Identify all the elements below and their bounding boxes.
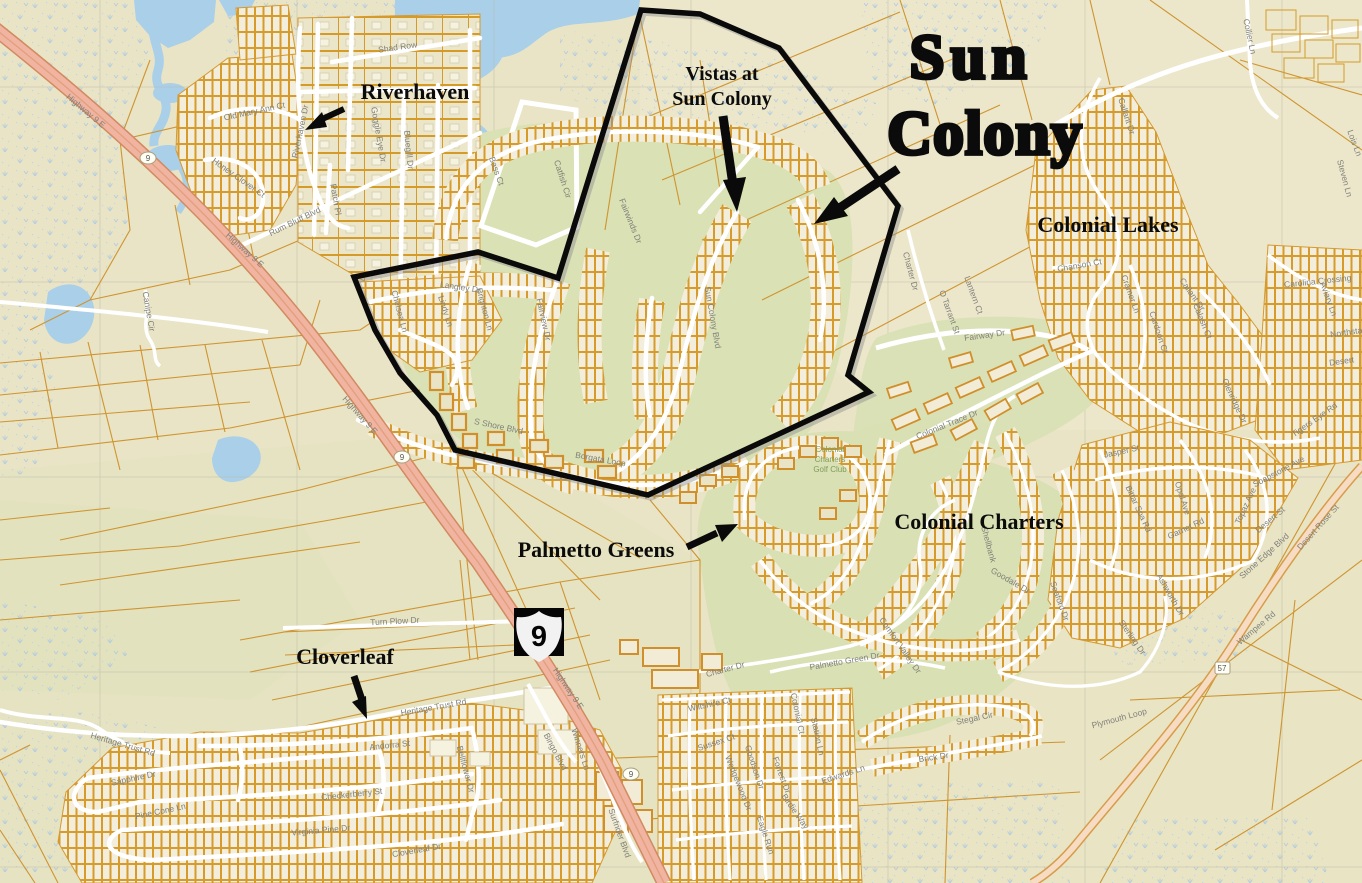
svg-text:Riverhaven: Riverhaven [361, 79, 470, 104]
svg-text:Colonial Lakes: Colonial Lakes [1037, 212, 1179, 237]
svg-text:9: 9 [629, 770, 634, 779]
svg-text:Colony: Colony [887, 100, 1082, 168]
svg-text:Cloverleaf: Cloverleaf [296, 644, 394, 669]
svg-text:Golf Club: Golf Club [813, 465, 847, 474]
svg-text:Colonial: Colonial [816, 445, 845, 454]
svg-text:57: 57 [1218, 664, 1227, 673]
svg-text:Charters: Charters [815, 455, 846, 464]
svg-text:9: 9 [531, 621, 547, 653]
svg-text:Vistas at: Vistas at [685, 63, 758, 85]
svg-text:9: 9 [400, 453, 405, 462]
svg-text:Palmetto Greens: Palmetto Greens [518, 537, 675, 562]
svg-text:Colonial Charters: Colonial Charters [894, 509, 1064, 534]
svg-text:Sun Colony: Sun Colony [672, 88, 772, 110]
svg-text:Sun: Sun [909, 22, 1032, 92]
svg-text:9: 9 [146, 154, 151, 163]
